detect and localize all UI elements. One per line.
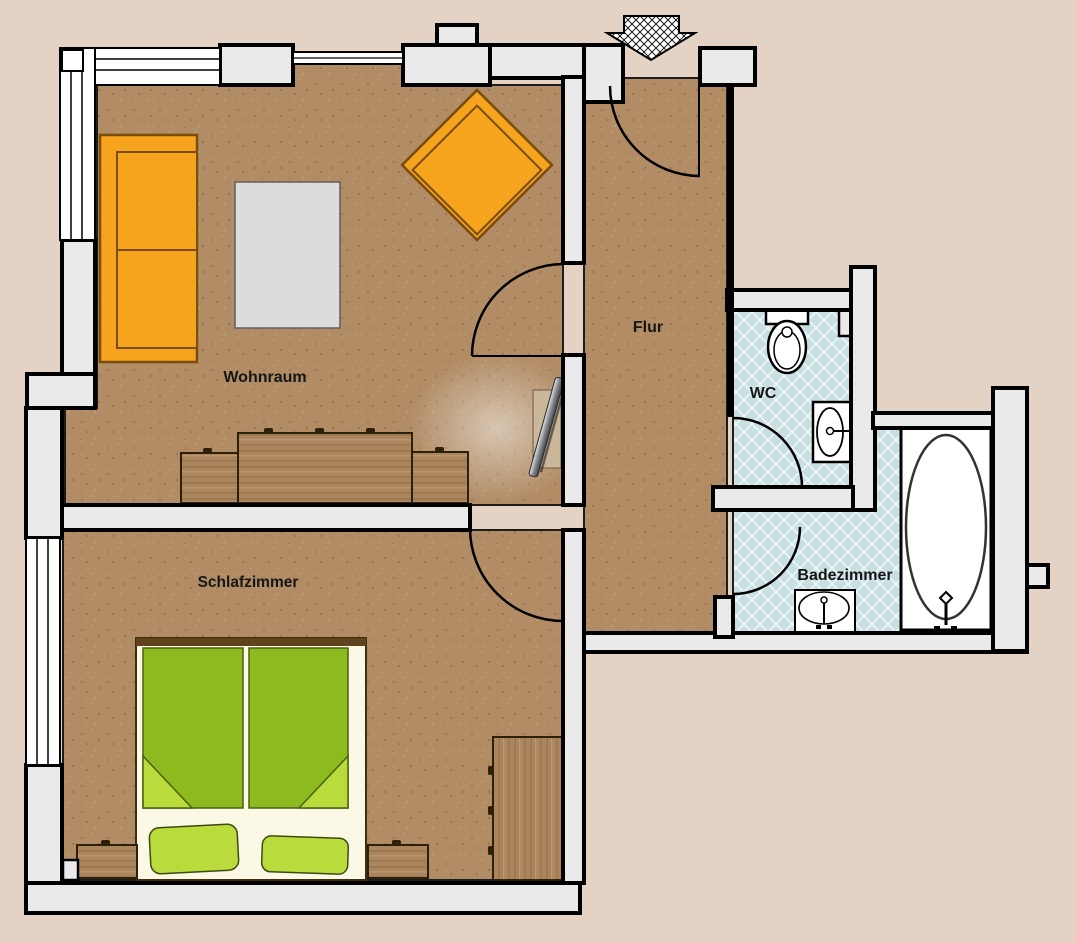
wall-bedroom-corner-notch	[63, 860, 78, 880]
wall-bad-east-notch	[1027, 565, 1048, 587]
badezimmer-label: Badezimmer	[797, 567, 892, 584]
entrance-jamb-left	[584, 45, 623, 102]
bed-headboard	[136, 638, 366, 646]
wohnraum-label: Wohnraum	[223, 369, 306, 386]
floor-plan: Wohnraum Schlafzimmer Flur WC Badezimmer	[0, 0, 1076, 943]
wall-west-jut	[27, 374, 95, 408]
wall-flur-east-thin	[727, 83, 734, 417]
bath-sink	[795, 590, 855, 632]
wall-flur-west-upper	[563, 77, 584, 263]
wall-room-divider	[62, 505, 470, 530]
wall-top-left-block	[220, 45, 293, 85]
wall-bedroom-bottom	[26, 883, 580, 913]
wall-bad-niche-top	[873, 413, 993, 428]
wall-bad-west-jog	[715, 597, 733, 637]
nightstand-left	[77, 840, 137, 878]
corner-window-post	[62, 50, 83, 71]
wardrobe	[488, 737, 563, 880]
double-bed	[136, 638, 366, 880]
pillow-right	[261, 836, 348, 875]
wall-top-band	[490, 45, 586, 78]
wall-wc-east	[851, 267, 875, 510]
bedroom-window	[26, 538, 60, 765]
wall-bad-east	[993, 388, 1027, 651]
wc-sink	[813, 402, 853, 462]
wall-top-mid-block	[403, 45, 490, 85]
sofa	[100, 135, 197, 362]
flur-label: Flur	[633, 319, 663, 336]
wall-wc-bad-divider	[713, 487, 853, 510]
toilet	[766, 310, 808, 373]
entrance-jamb-right	[700, 48, 755, 85]
flur-floor	[584, 78, 727, 635]
wall-west-lower	[26, 408, 62, 538]
rug	[235, 182, 340, 328]
wall-west-upper	[62, 240, 95, 374]
pillow-left	[149, 824, 239, 875]
top-window	[293, 52, 403, 64]
bathtub	[901, 427, 991, 631]
nightstand-right	[368, 840, 428, 878]
wall-wc-top	[727, 290, 853, 310]
wc-label: WC	[750, 385, 777, 402]
wall-south-band	[584, 633, 1027, 652]
floor-plan-drawing: Wohnraum Schlafzimmer Flur WC Badezimmer	[0, 0, 1076, 943]
wall-flur-west-lower	[563, 355, 584, 505]
wall-bedroom-east	[563, 530, 584, 883]
schlafzimmer-label: Schlafzimmer	[198, 574, 299, 591]
